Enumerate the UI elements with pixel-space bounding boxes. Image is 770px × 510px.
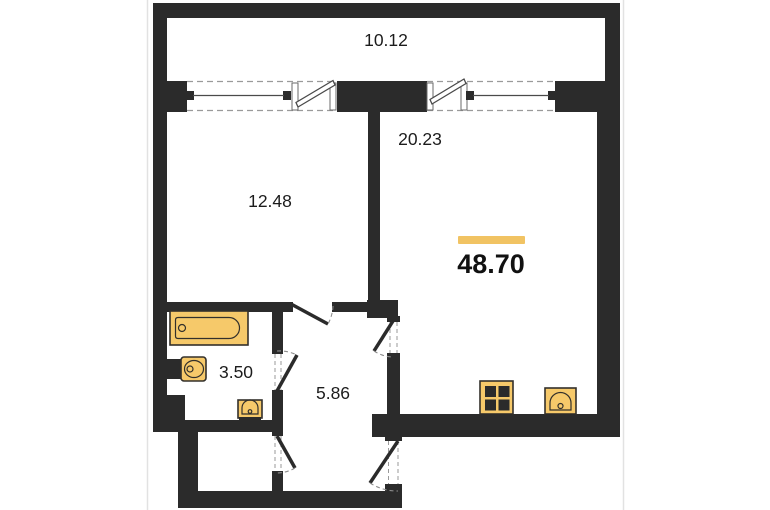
wall-segment	[153, 81, 167, 427]
balcony-door-right	[427, 79, 467, 110]
wall-pier	[337, 81, 427, 112]
window-cap	[548, 91, 556, 100]
door-hinge	[272, 471, 283, 477]
kitchen-sink-base	[546, 414, 575, 420]
stove-burner	[485, 400, 496, 411]
wall-segment	[178, 491, 402, 508]
stove-burner	[499, 400, 510, 411]
door-leaf	[296, 81, 335, 108]
hallway-area-label: 5.86	[316, 383, 350, 403]
door-leaf	[291, 304, 328, 324]
window-left	[186, 91, 291, 100]
bedroom-area-label: 12.48	[248, 191, 292, 211]
bathtub-icon	[170, 311, 248, 345]
total-area-marker: 48.70	[457, 236, 525, 279]
wall-segment	[368, 112, 380, 304]
total-area-label: 48.70	[457, 249, 525, 279]
closet-door	[272, 430, 295, 477]
entrance-door	[370, 433, 402, 492]
door-hinge	[387, 316, 400, 322]
window-right	[466, 91, 556, 100]
bathtub-outline	[170, 311, 248, 345]
floor-plan-page: 10.12 12.48 20.23 3.50 5.86 48.70	[0, 0, 770, 510]
door-hinge	[385, 433, 402, 441]
wall-segment	[387, 356, 400, 414]
wall-segment	[272, 310, 283, 352]
toilet-tank	[167, 359, 182, 379]
wall-pier	[555, 81, 620, 112]
washbasin-base	[239, 417, 261, 423]
washbasin-icon	[238, 400, 262, 423]
stove-burner	[499, 386, 510, 397]
window-cap	[283, 91, 291, 100]
door-hinge	[387, 353, 400, 359]
living-room-area-label: 20.23	[398, 129, 442, 149]
wall-segment	[178, 432, 198, 492]
total-area-bar	[458, 236, 525, 244]
balcony-area-label: 10.12	[364, 30, 408, 50]
door-leaf	[277, 355, 297, 391]
door-hinge	[272, 430, 283, 436]
wall-segment	[597, 110, 620, 437]
door-leaf	[370, 441, 398, 483]
wall-segment	[153, 3, 167, 83]
bedroom-door	[285, 302, 333, 324]
balcony-door-left	[292, 81, 336, 111]
window-cap	[466, 91, 474, 100]
kitchen-sink-icon	[545, 388, 576, 420]
door-swing-arc	[328, 306, 333, 324]
door-frame-post	[427, 83, 433, 110]
wall-segment	[367, 300, 398, 318]
wall-segment	[605, 3, 620, 83]
door-leaf	[277, 436, 295, 468]
stove-burner	[485, 386, 496, 397]
wall-segment	[153, 3, 620, 18]
wall-segment	[332, 302, 368, 312]
bathroom-door	[272, 348, 297, 396]
wall-segment	[153, 420, 283, 432]
toilet-icon	[167, 357, 206, 381]
stove-icon	[480, 381, 513, 420]
stove-base	[481, 414, 512, 420]
walls	[153, 3, 620, 508]
floor-plan-drawing: 10.12 12.48 20.23 3.50 5.86 48.70	[0, 0, 770, 510]
window-cap	[186, 91, 194, 100]
living-room-door	[374, 316, 400, 359]
bathroom-area-label: 3.50	[219, 362, 253, 382]
